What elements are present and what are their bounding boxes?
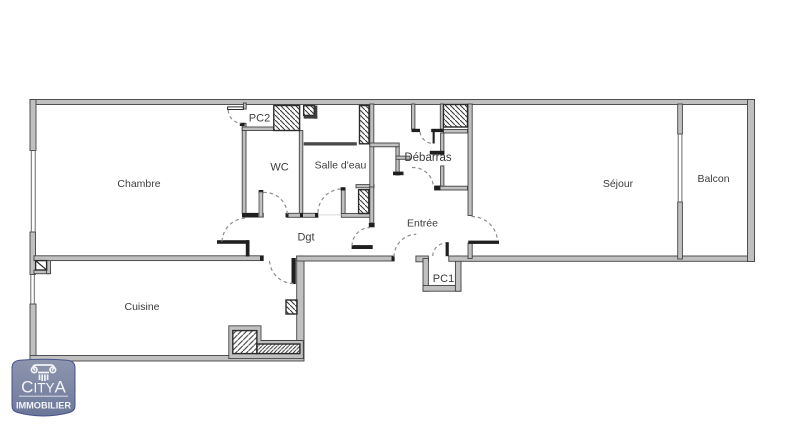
svg-text:Salle d'eau: Salle d'eau: [315, 160, 367, 172]
svg-text:Entrée: Entrée: [407, 218, 438, 230]
svg-text:Chambre: Chambre: [117, 178, 160, 190]
svg-text:Dgt: Dgt: [297, 232, 314, 244]
svg-text:Balcon: Balcon: [697, 173, 729, 185]
svg-text:Séjour: Séjour: [603, 178, 634, 190]
svg-text:Cuisine: Cuisine: [124, 301, 159, 313]
svg-text:WC: WC: [270, 162, 288, 174]
svg-text:IMMOBILIER: IMMOBILIER: [16, 401, 71, 411]
svg-text:CITYA: CITYA: [21, 378, 66, 397]
svg-text:Débarras: Débarras: [404, 152, 452, 164]
svg-text:PC2: PC2: [249, 113, 270, 125]
svg-text:PC1: PC1: [433, 273, 454, 285]
